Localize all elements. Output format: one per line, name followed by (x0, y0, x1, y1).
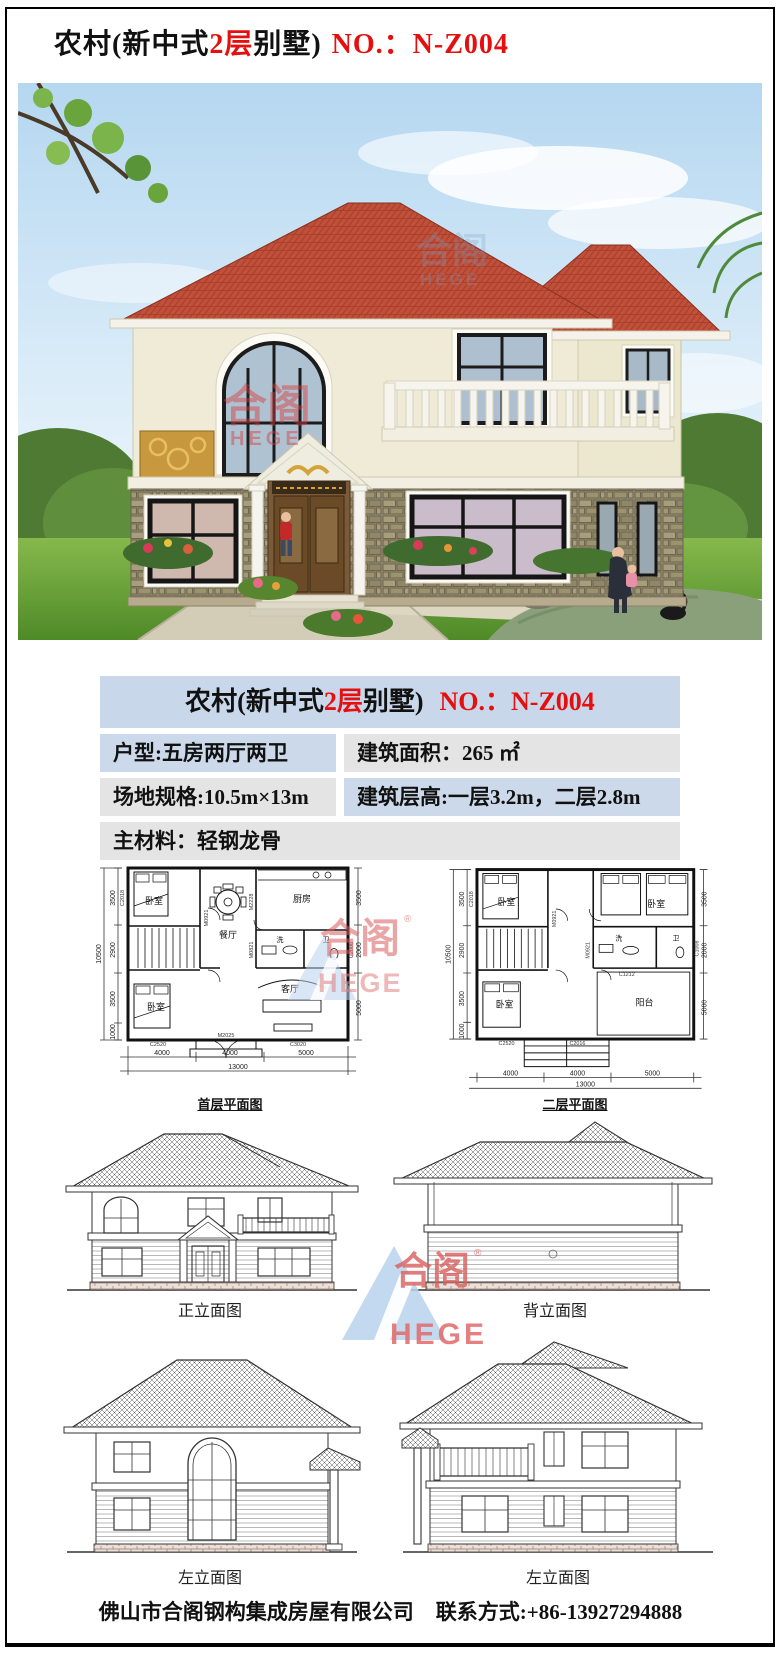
svg-text:卧室: 卧室 (145, 895, 163, 906)
svg-text:C2018: C2018 (120, 890, 126, 906)
svg-text:3500: 3500 (459, 991, 466, 1006)
svg-text:C2016: C2016 (570, 1041, 586, 1047)
svg-text:5000: 5000 (702, 1000, 709, 1015)
second-floor-plan-label: 二层平面图 (410, 1094, 740, 1113)
svg-text:厨房: 厨房 (293, 893, 311, 904)
spec-header-floors: 2层 (324, 687, 363, 716)
svg-text:2900: 2900 (110, 942, 117, 958)
svg-text:5000: 5000 (298, 1050, 314, 1057)
svg-text:4000: 4000 (570, 1071, 585, 1078)
spec-site-size: 场地规格:10.5m×13m (100, 778, 336, 816)
svg-text:洗: 洗 (615, 934, 622, 943)
svg-text:餐厅: 餐厅 (219, 929, 237, 940)
svg-text:3500: 3500 (356, 890, 363, 906)
svg-text:卧室: 卧室 (147, 1001, 165, 1012)
svg-text:客厅: 客厅 (281, 983, 299, 994)
svg-text:卫: 卫 (673, 935, 680, 943)
svg-text:5000: 5000 (645, 1071, 660, 1078)
company-name: 佛山市合阁钢构集成房屋有限公司 (99, 1600, 414, 1624)
svg-text:卫: 卫 (323, 936, 330, 944)
title-part-black1: 农村(新中式 (54, 29, 209, 60)
svg-text:洗: 洗 (277, 935, 284, 944)
second-floor-plan: 卧室 卧室 洗 卫 卧室 阳台 C2018 M0921 M0921 C1008 … (408, 856, 743, 1094)
svg-text:阳台: 阳台 (636, 997, 654, 1008)
svg-text:C1008: C1008 (695, 940, 701, 956)
svg-text:10500: 10500 (445, 945, 452, 964)
spec-row-1: 户型:五房两厅两卫 建筑面积：265 ㎡ (100, 734, 680, 772)
footer-contact-line: 佛山市合阁钢构集成房屋有限公司联系方式:+86-13927294888 (0, 1596, 781, 1626)
title-part-black2: 别墅) (253, 29, 321, 60)
spec-table-header: 农村(新中式2层别墅)NO.：N-Z004 (100, 676, 680, 728)
front-elevation-label: 正立面图 (60, 1297, 360, 1321)
svg-text:4000: 4000 (154, 1050, 170, 1057)
spec-material: 主材料：轻钢龙骨 (100, 822, 680, 860)
brochure-page: 农村(新中式2层别墅)NO.：N-Z004 (0, 0, 781, 1655)
svg-text:M0921: M0921 (204, 910, 210, 927)
back-elevation-label: 背立面图 (390, 1297, 720, 1321)
title-model-no: NO.：N-Z004 (332, 29, 509, 60)
back-elevation-drawing (388, 1112, 718, 1297)
svg-text:3500: 3500 (702, 891, 709, 906)
svg-text:13000: 13000 (228, 1064, 248, 1071)
photo-watermark-blue: 合阁 HEGE (416, 230, 488, 289)
svg-text:5000: 5000 (356, 1000, 363, 1016)
svg-text:1000: 1000 (459, 1023, 466, 1038)
svg-text:卧室: 卧室 (498, 896, 516, 907)
svg-text:M0821: M0821 (249, 942, 255, 959)
left-elevation-label-1: 左立面图 (60, 1564, 360, 1588)
spec-header-model-no: NO.：N-Z004 (440, 687, 595, 716)
spec-unit-type: 户型:五房两厅两卫 (100, 734, 336, 772)
svg-text:2000: 2000 (702, 943, 709, 958)
svg-text:C2520: C2520 (150, 1042, 166, 1048)
svg-text:13000: 13000 (576, 1081, 595, 1088)
mid-cornice (128, 477, 684, 489)
svg-text:卧室: 卧室 (496, 999, 514, 1010)
svg-text:C2018: C2018 (469, 891, 475, 907)
watermark-blue-cn: 合阁 (416, 230, 488, 271)
svg-text:3500: 3500 (459, 891, 466, 906)
spec-area: 建筑面积：265 ㎡ (344, 734, 680, 772)
spec-storey-height: 建筑层高:一层3.2m，二层2.8m (344, 778, 680, 816)
first-floor-plan-label: 首层平面图 (60, 1094, 400, 1113)
first-floor-plan: 卧室 餐厅 厨房 洗 卫 客厅 卧室 C2018 M0921 M2228 M08… (58, 856, 398, 1094)
title-floors: 2层 (209, 29, 253, 60)
spec-row-3: 主材料：轻钢龙骨 (100, 822, 680, 860)
svg-text:C2520: C2520 (499, 1041, 515, 1047)
svg-text:M2025: M2025 (218, 1033, 235, 1039)
gold-relief-panel (140, 431, 214, 481)
svg-text:M0921: M0921 (585, 942, 591, 959)
svg-text:C1212: C1212 (619, 972, 635, 978)
svg-text:1000: 1000 (110, 1024, 117, 1040)
photo-watermark-red: 合阁 HEGE (223, 382, 311, 450)
watermark-en-text: HEGE (230, 428, 303, 450)
spec-header-black2: 别墅) (363, 687, 424, 716)
front-elevation-drawing (62, 1112, 362, 1297)
svg-text:M2228: M2228 (249, 894, 255, 911)
spec-row-2: 场地规格:10.5m×13m 建筑层高:一层3.2m，二层2.8m (100, 778, 680, 816)
villa-render-photo: 合阁 HEGE 合阁 HEGE (18, 83, 762, 640)
left-elevation-drawing-1 (62, 1330, 362, 1560)
left-elevation-label-2: 左立面图 (398, 1564, 718, 1588)
svg-text:C2006: C2006 (349, 942, 355, 958)
contact-phone: 联系方式:+86-13927294888 (436, 1600, 682, 1624)
svg-text:3500: 3500 (110, 991, 117, 1007)
plinth (128, 597, 686, 606)
page-title: 农村(新中式2层别墅)NO.：N-Z004 (54, 22, 509, 62)
spec-header-black1: 农村(新中式 (185, 687, 324, 716)
svg-text:4000: 4000 (503, 1071, 518, 1078)
svg-text:3500: 3500 (110, 890, 117, 906)
svg-text:2900: 2900 (459, 943, 466, 958)
svg-text:卧室: 卧室 (647, 898, 665, 909)
svg-text:10500: 10500 (96, 944, 103, 964)
watermark-cn-text: 合阁 (223, 382, 311, 431)
svg-text:M0921: M0921 (552, 911, 558, 928)
svg-text:C3020: C3020 (290, 1042, 306, 1048)
watermark-blue-en: HEGE (420, 270, 480, 289)
svg-text:4000: 4000 (222, 1050, 238, 1057)
left-elevation-drawing-2 (398, 1330, 718, 1560)
svg-text:2000: 2000 (356, 942, 363, 958)
